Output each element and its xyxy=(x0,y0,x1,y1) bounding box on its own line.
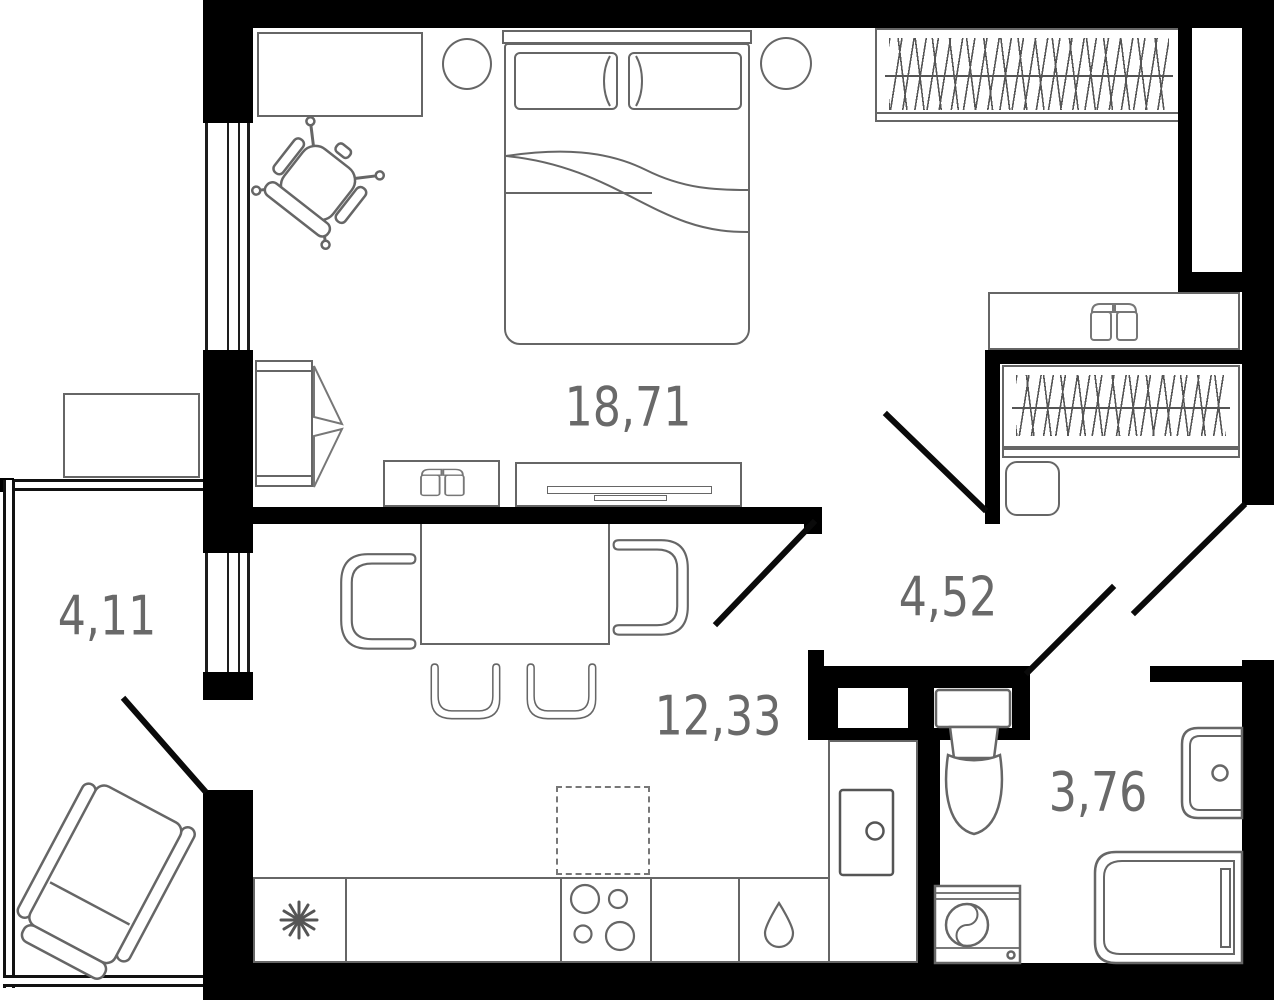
room-label-living-kitchen: 12,33 xyxy=(655,685,782,748)
floor-plan: 18,71 12,33 4,52 3,76 4,11 xyxy=(0,0,1274,1000)
room-label-balcony: 4,11 xyxy=(58,585,157,648)
dresser-content-icon xyxy=(421,469,464,495)
bathroom-sink xyxy=(1182,728,1242,818)
water-drop-icon xyxy=(765,903,793,947)
toilet xyxy=(936,690,1010,834)
plan-details xyxy=(0,0,1274,1000)
bedroom-door-leaf xyxy=(887,415,984,509)
bed-linen-lines xyxy=(506,56,748,232)
hob-burners-icon xyxy=(571,885,634,950)
living-hall-door-leaf xyxy=(717,523,813,623)
balcony-chair xyxy=(6,774,197,988)
balcony-door-leaf xyxy=(125,700,204,790)
bathtub xyxy=(1095,852,1242,963)
wardrobe-content-icon xyxy=(1091,304,1137,340)
room-label-bedroom: 18,71 xyxy=(565,376,692,439)
room-label-hall: 4,52 xyxy=(899,566,998,629)
cold-symbol-icon xyxy=(281,902,317,938)
closet-doors xyxy=(314,366,342,487)
office-chair xyxy=(251,116,386,251)
washing-machine xyxy=(935,886,1020,963)
room-label-bathroom: 3,76 xyxy=(1049,761,1148,824)
bathroom-door-leaf xyxy=(1028,588,1112,672)
kitchen-sink xyxy=(840,790,893,875)
entry-door-leaf xyxy=(1135,506,1243,612)
dining-chairs xyxy=(341,540,688,719)
